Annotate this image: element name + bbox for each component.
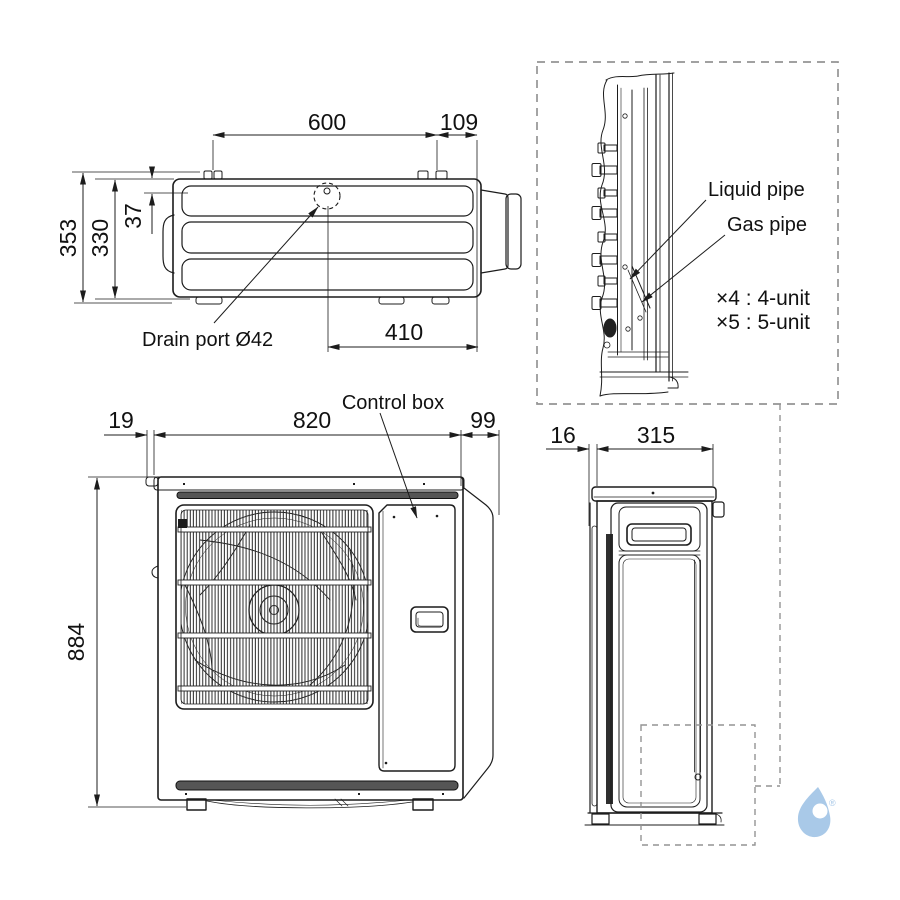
dim-353-value: 353 (55, 219, 81, 257)
registered-mark: ® (829, 798, 836, 808)
valve-body (604, 319, 617, 338)
fan-grille-bars (181, 510, 368, 704)
drain-label-text: Drain port Ø42 (142, 329, 273, 351)
dim-330-value: 330 (87, 219, 113, 257)
control-box-label: Control box (342, 392, 444, 414)
dim-884-value: 884 (63, 623, 89, 662)
liquid-pipe-label: Liquid pipe (708, 179, 805, 201)
gas-pipe-label: Gas pipe (727, 214, 807, 236)
heat-exchanger-fins (606, 534, 613, 804)
outdoor-unit-dimension-drawing: 600 109 353 330 37 (0, 0, 900, 900)
dim-109-value: 109 (440, 109, 478, 135)
dim-820-value: 820 (293, 407, 331, 433)
unit-note-2: ×5 : 5-unit (716, 311, 810, 334)
dim-410-value: 410 (385, 319, 423, 345)
dim-99-value: 99 (470, 407, 496, 433)
dim-16-value: 16 (550, 422, 576, 448)
dim-600-value: 600 (308, 109, 346, 135)
dim-37-value: 37 (120, 203, 146, 229)
dim-19-value: 19 (108, 407, 134, 433)
unit-note-1: ×4 : 4-unit (716, 287, 810, 310)
technical-drawing-page: 600 109 353 330 37 (0, 0, 900, 900)
dim-315-value: 315 (637, 422, 675, 448)
